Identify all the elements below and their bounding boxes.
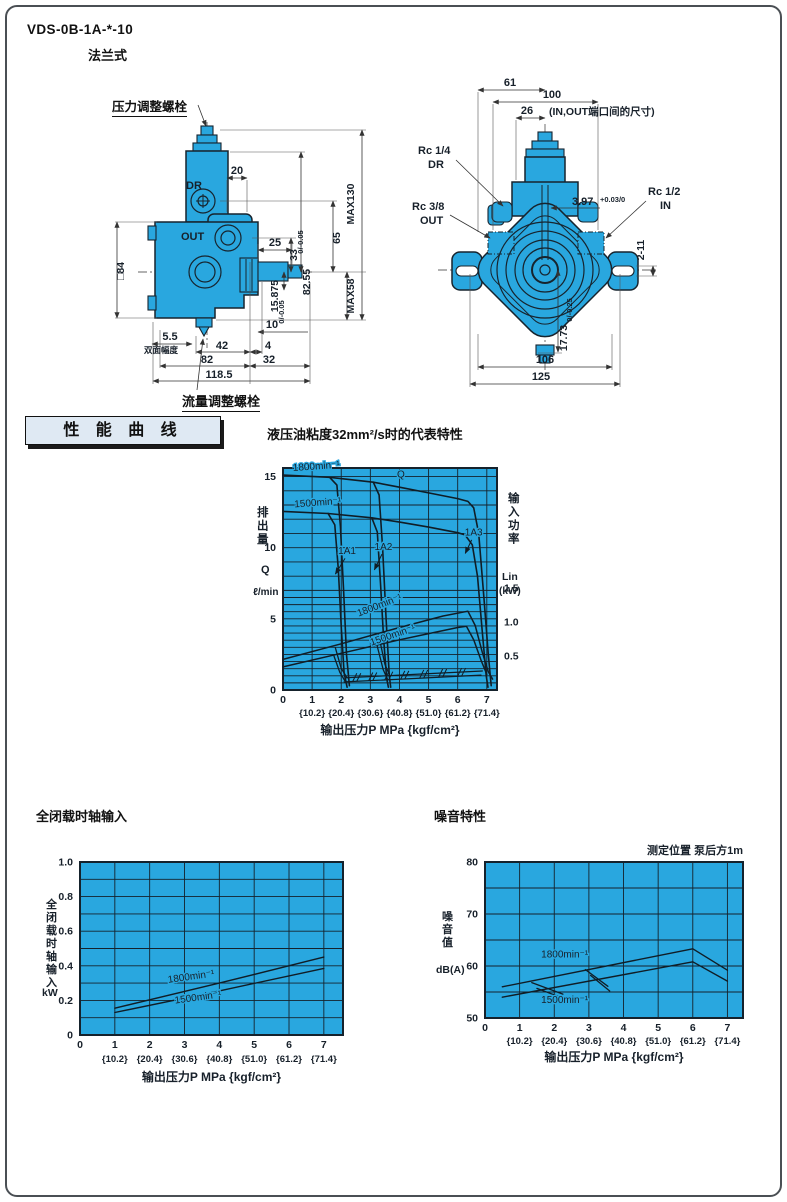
main-series-label: 1A3 bbox=[465, 528, 483, 539]
shaft-y-tick: 0.4 bbox=[58, 960, 73, 972]
shaft-y-tick: 0.2 bbox=[58, 995, 73, 1007]
dim-max58: MAX58 bbox=[345, 278, 357, 313]
dim-100: 100 bbox=[543, 89, 561, 101]
shaft-x-tick: 7 bbox=[321, 1039, 327, 1051]
shaft-y-tick: 0.6 bbox=[58, 926, 73, 938]
shaft-x-tick: 3 bbox=[182, 1039, 188, 1051]
dim-note-double-width: 双面幅度 bbox=[144, 345, 179, 355]
main-axis-label: (kW) bbox=[499, 586, 521, 597]
dim-397-tol: +0.03/0 bbox=[600, 195, 625, 204]
main-x-subtick: {51.0} bbox=[416, 708, 442, 719]
dim-max130: MAX130 bbox=[345, 183, 357, 224]
noise-x-tick: 2 bbox=[551, 1022, 557, 1034]
main-series-label: 1A2 bbox=[375, 542, 393, 553]
noise-axis-label: 测定位置 泵后方1m bbox=[647, 843, 743, 857]
main-x-subtick: {71.4} bbox=[474, 708, 500, 719]
shaft-x-subtick: {30.6} bbox=[172, 1054, 198, 1065]
dim-32: 32 bbox=[263, 354, 275, 366]
noise-x-subtick: {51.0} bbox=[645, 1036, 671, 1047]
noise-chart: 1800min⁻¹1500min⁻¹01{10.2}2{20.4}3{30.6}… bbox=[430, 820, 787, 1085]
dim-1185: 118.5 bbox=[206, 369, 233, 381]
shaft-axis-label: kW bbox=[42, 987, 58, 999]
dim-125: 125 bbox=[532, 371, 550, 383]
noise-x-tick: 3 bbox=[586, 1022, 592, 1034]
main-y2-tick: 0.5 bbox=[504, 651, 519, 663]
port-dr-label: DR bbox=[186, 180, 202, 192]
noise-x-subtick: {10.2} bbox=[507, 1036, 533, 1047]
dim-1773: 17.73 bbox=[558, 325, 570, 351]
pump-body-front bbox=[452, 132, 638, 363]
main-y-tick: 0 bbox=[270, 685, 276, 697]
dim-55: 5.5 bbox=[162, 331, 177, 343]
main-x-subtick: {40.8} bbox=[387, 708, 413, 719]
main-x-axis-title: 输出压力P MPa {kgf/cm²} bbox=[320, 722, 459, 737]
main-y2-tick: 1.0 bbox=[504, 617, 519, 629]
main-series-label: 1A1 bbox=[338, 546, 356, 557]
shaft-x-subtick: {20.4} bbox=[137, 1054, 163, 1065]
noise-x-tick: 4 bbox=[621, 1022, 627, 1034]
noise-series-label: 1500min⁻¹ bbox=[541, 995, 589, 1006]
shaft-axis-label-char: 轴 bbox=[46, 949, 57, 963]
main-x-tick: 6 bbox=[455, 694, 461, 706]
noise-series-label: 1800min⁻¹ bbox=[541, 950, 589, 961]
shaft-y-tick: 0.8 bbox=[58, 891, 73, 903]
noise-x-axis-title: 输出压力P MPa {kgf/cm²} bbox=[544, 1049, 683, 1064]
noise-y-tick: 60 bbox=[466, 961, 478, 973]
main-axis-label-char: 率 bbox=[508, 532, 520, 546]
noise-x-subtick: {61.2} bbox=[680, 1036, 706, 1047]
main-x-tick: 7 bbox=[484, 694, 490, 706]
dim-20: 20 bbox=[231, 165, 243, 177]
main-series-label: Q bbox=[397, 469, 405, 480]
dim-4: 4 bbox=[265, 340, 272, 352]
port-rc14-label: Rc 1/4 bbox=[418, 145, 451, 157]
main-axis-label: Q bbox=[261, 564, 270, 576]
shaft-x-subtick: {51.0} bbox=[241, 1054, 267, 1065]
dim-25: 25 bbox=[269, 237, 281, 249]
dim-42: 42 bbox=[216, 340, 228, 352]
main-axis-label: Lin bbox=[502, 571, 518, 583]
shaft-axis-label-char: 输 bbox=[46, 962, 58, 976]
main-y-tick: 5 bbox=[270, 613, 276, 625]
shaft-x-tick: 0 bbox=[77, 1039, 83, 1051]
dim-33-tol: 0/-0.05 bbox=[296, 230, 305, 253]
noise-x-tick: 0 bbox=[482, 1022, 488, 1034]
shaft-x-tick: 5 bbox=[251, 1039, 257, 1051]
main-x-tick: 1 bbox=[309, 694, 315, 706]
shaft-axis-label-char: 时 bbox=[46, 936, 57, 950]
noise-x-tick: 6 bbox=[690, 1022, 696, 1034]
main-x-subtick: {10.2} bbox=[299, 708, 325, 719]
shaft-x-subtick: {10.2} bbox=[102, 1054, 128, 1065]
main-axis-label-char: 功 bbox=[508, 518, 520, 532]
port-rc12-label: Rc 1/2 bbox=[648, 186, 680, 198]
noise-axis-label-char: 噪 bbox=[442, 910, 454, 923]
dim-15875-tol: 0/-0.05 bbox=[277, 300, 286, 323]
shaft-x-tick: 1 bbox=[112, 1039, 118, 1051]
pressure-bolt-leader bbox=[198, 105, 206, 126]
shaft-x-tick: 4 bbox=[216, 1039, 222, 1051]
main-x-subtick: {30.6} bbox=[357, 708, 383, 719]
section-header-performance-curves: 性 能 曲 线 bbox=[25, 416, 221, 445]
noise-x-tick: 1 bbox=[517, 1022, 523, 1034]
dim-84: □84 bbox=[115, 262, 127, 280]
shaft-x-tick: 6 bbox=[286, 1039, 292, 1051]
main-x-tick: 4 bbox=[397, 694, 403, 706]
shaft-x-subtick: {61.2} bbox=[276, 1054, 302, 1065]
main-x-tick: 0 bbox=[280, 694, 286, 706]
main-x-tick: 5 bbox=[426, 694, 432, 706]
pump-front-view-drawing: 61 100 26 (IN,OUT端口间的尺寸) Rc 1/4 DR Rc 3/… bbox=[410, 60, 780, 410]
main-x-subtick: {61.2} bbox=[445, 708, 471, 719]
port-dr-label: DR bbox=[428, 159, 444, 171]
main-x-subtick: {20.4} bbox=[328, 708, 354, 719]
shaft-chart: 1800min⁻¹1500min⁻¹01{10.2}2{20.4}3{30.6}… bbox=[30, 820, 410, 1095]
shaft-x-subtick: {71.4} bbox=[311, 1054, 337, 1065]
dim-10: 10 bbox=[266, 319, 278, 331]
noise-axis-label: dB(A) bbox=[436, 964, 465, 976]
main-axis-label-char: 出 bbox=[257, 519, 269, 533]
shaft-axis-label-char: 闭 bbox=[46, 910, 57, 924]
shaft-x-axis-title: 输出压力P MPa {kgf/cm²} bbox=[142, 1069, 281, 1084]
model-title: VDS-0B-1A-*-10 bbox=[27, 22, 133, 37]
noise-axis-label-char: 值 bbox=[442, 935, 453, 949]
noise-x-tick: 5 bbox=[655, 1022, 661, 1034]
noise-x-subtick: {40.8} bbox=[611, 1036, 637, 1047]
shaft-axis-label-char: 全 bbox=[45, 897, 58, 911]
port-out-label: OUT bbox=[420, 215, 444, 227]
noise-x-subtick: {30.6} bbox=[576, 1036, 602, 1047]
dim-106: 106 bbox=[536, 354, 554, 366]
noise-x-subtick: {20.4} bbox=[541, 1036, 567, 1047]
noise-y-tick: 70 bbox=[466, 909, 478, 921]
noise-y-tick: 50 bbox=[466, 1013, 478, 1025]
shaft-x-tick: 2 bbox=[147, 1039, 153, 1051]
main-y-tick: 15 bbox=[264, 471, 276, 483]
dim-61: 61 bbox=[504, 77, 516, 89]
dim-8255: 82.55 bbox=[301, 269, 313, 295]
dim-397: 3.97 bbox=[572, 196, 593, 208]
main-x-tick: 3 bbox=[367, 694, 373, 706]
port-distance-note: (IN,OUT端口间的尺寸) bbox=[549, 105, 655, 118]
shaft-y-tick: 1.0 bbox=[58, 857, 73, 869]
dim-1773-tol: 0/-0.25 bbox=[565, 298, 574, 321]
port-in-label: IN bbox=[660, 200, 671, 212]
main-axis-label-char: 入 bbox=[508, 506, 520, 519]
main-axis-label-char: 排 bbox=[257, 505, 269, 519]
dim-65: 65 bbox=[331, 232, 343, 244]
port-rc38-label: Rc 3/8 bbox=[412, 201, 444, 213]
noise-x-subtick: {71.4} bbox=[714, 1036, 740, 1047]
port-out-label: OUT bbox=[181, 231, 205, 243]
main-axis-label-char: 输 bbox=[508, 491, 520, 505]
noise-axis-label-char: 音 bbox=[442, 922, 453, 936]
pump-side-view-drawing: DR OUT 20 25 33 0/-0.05 15.875 0/-0.05 8… bbox=[20, 60, 420, 420]
main-axis-label-char: 量 bbox=[257, 532, 269, 546]
dim-211: 2-11 bbox=[635, 240, 647, 261]
main-axis-label: ℓ/min bbox=[253, 587, 278, 598]
dim-26: 26 bbox=[521, 105, 533, 117]
noise-y-tick: 80 bbox=[466, 857, 478, 869]
dim-82: 82 bbox=[201, 354, 213, 366]
shaft-y-tick: 0 bbox=[67, 1030, 73, 1042]
main-chart: 1800min⁻¹Q1500min⁻¹1A11A21A31800min⁻¹150… bbox=[240, 450, 585, 750]
main-chart-subtitle: 液压油粘度32mm²/s时的代表特性 bbox=[267, 424, 463, 443]
shaft-axis-label-char: 载 bbox=[46, 923, 57, 937]
noise-x-tick: 7 bbox=[724, 1022, 730, 1034]
main-x-tick: 2 bbox=[338, 694, 344, 706]
shaft-x-subtick: {40.8} bbox=[206, 1054, 232, 1065]
